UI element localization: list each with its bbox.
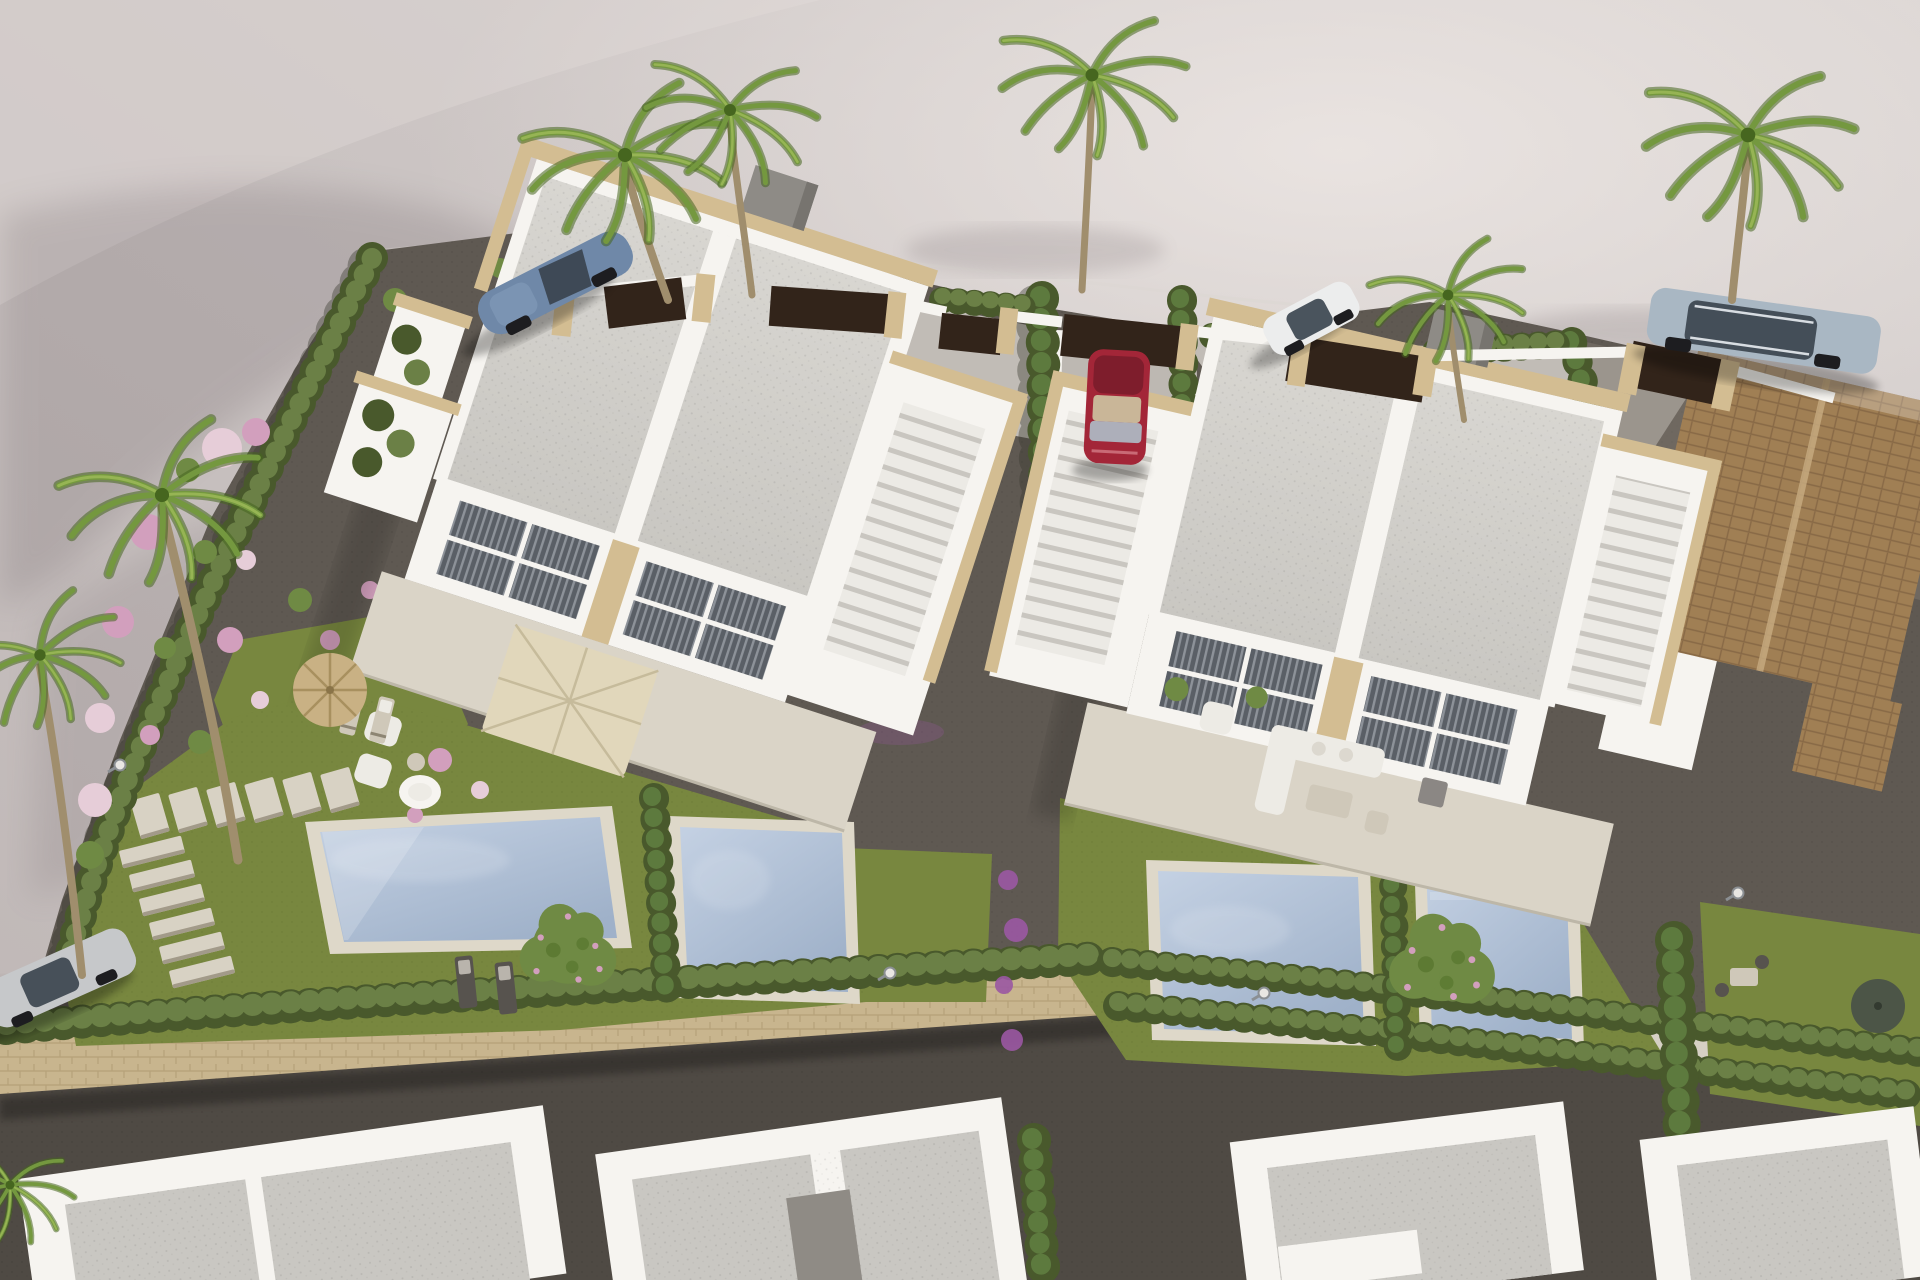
render-canvas: [0, 0, 1920, 1280]
architectural-render: [0, 0, 1920, 1280]
